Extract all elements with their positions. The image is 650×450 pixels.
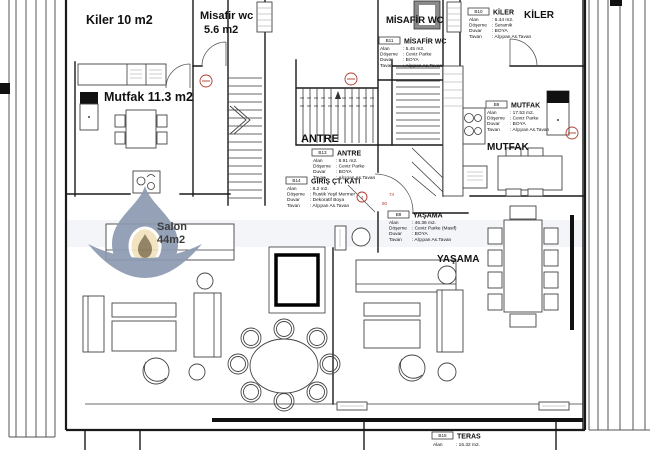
svg-text:: 17.53 m2.: : 17.53 m2. bbox=[510, 110, 534, 116]
info-box-misafir-wc: B11 MİSAFİR WC Alan: 5.45 m2. Döşeme: Ce… bbox=[379, 37, 446, 69]
svg-text:TERAS: TERAS bbox=[457, 434, 481, 441]
door-misafir-wc-left bbox=[202, 42, 226, 66]
section-lines-left bbox=[0, 0, 55, 437]
svg-text:MİSAFİR WC: MİSAFİR WC bbox=[404, 38, 446, 46]
kitchen-table-left bbox=[115, 110, 167, 148]
svg-text:: Ceviz Parke: : Ceviz Parke bbox=[510, 116, 539, 122]
info-box-antre: B13 ANTRE Alan: 8.91 m2. Döşeme: Ceviz P… bbox=[312, 149, 376, 181]
door-kiler-right bbox=[510, 39, 537, 66]
kiler-counter bbox=[78, 64, 166, 85]
dining-table-round bbox=[228, 319, 340, 411]
svg-text:B11: B11 bbox=[386, 38, 394, 43]
svg-text:: Ceviz Parke (Masif): : Ceviz Parke (Masif) bbox=[412, 226, 457, 232]
label-mutfak-right: MUTFAK bbox=[487, 142, 529, 153]
svg-text:Duvar: Duvar bbox=[389, 231, 402, 237]
svg-text:B9: B9 bbox=[494, 102, 500, 107]
kitchen-counter-right bbox=[443, 66, 487, 196]
svg-text:: Seramik: : Seramik bbox=[492, 23, 513, 29]
label-salon: Salon bbox=[157, 221, 187, 233]
yasama-armchair bbox=[399, 355, 425, 381]
svg-text:: Alçıpan As.Tavan: : Alçıpan As.Tavan bbox=[492, 34, 532, 40]
section-lines-right bbox=[589, 0, 650, 430]
floor-plan-canvas: 4 74 90 Kiler 10 m2 Misafir wc 5.6 m2 Mu… bbox=[0, 0, 650, 450]
floor-plan-drawing: 4 74 90 Kiler 10 m2 Misafir wc 5.6 m2 Mu… bbox=[0, 0, 650, 450]
svg-text:Duvar: Duvar bbox=[469, 28, 482, 34]
svg-text:Döşeme: Döşeme bbox=[469, 23, 487, 29]
svg-text:Tavan: Tavan bbox=[487, 127, 500, 133]
door-angle: 90 bbox=[382, 201, 388, 206]
label-misafir-wc-right: MİSAFİR WC bbox=[386, 15, 444, 26]
terrace-glazing bbox=[212, 402, 583, 422]
svg-text:: BOYA: : BOYA bbox=[492, 28, 508, 34]
svg-text:: BOYA: : BOYA bbox=[412, 231, 428, 237]
staircase-right bbox=[396, 68, 443, 196]
svg-text:Tavan: Tavan bbox=[469, 34, 482, 40]
svg-text:: Ceviz Parke: : Ceviz Parke bbox=[336, 164, 365, 170]
yasama-sofa-set bbox=[356, 260, 463, 381]
svg-text:: 46.36 m2.: : 46.36 m2. bbox=[412, 220, 436, 226]
svg-text:ANTRE: ANTRE bbox=[337, 151, 361, 158]
fridge-right bbox=[547, 91, 569, 135]
svg-text:Döşeme: Döşeme bbox=[487, 116, 505, 122]
svg-text:: Alçıpan As.Tavan: : Alçıpan As.Tavan bbox=[412, 237, 452, 243]
label-misafir-wc-left-area: 5.6 m2 bbox=[204, 24, 238, 36]
svg-text:: Rustik Yeşil Mermer: : Rustik Yeşil Mermer bbox=[310, 192, 355, 198]
svg-text:KİLER: KİLER bbox=[493, 9, 514, 17]
info-box-giris-kati: B14 GİRİŞ ÇT. KATI Alan: 8.2 m2. Döşeme:… bbox=[286, 177, 360, 209]
label-yasama: YAŞAMA bbox=[437, 254, 479, 265]
svg-text:Alan: Alan bbox=[433, 442, 443, 448]
svg-text:Duvar: Duvar bbox=[487, 121, 500, 127]
door-kiler-left bbox=[166, 64, 190, 88]
elevator bbox=[269, 247, 325, 313]
info-box-mutfak-right: B9 MUTFAK Alan: 17.53 m2. Döşeme: Ceviz … bbox=[486, 101, 550, 133]
svg-text:: 8.91 m2.: : 8.91 m2. bbox=[336, 158, 357, 164]
info-box-yasama: B8 YAŞAMA Alan: 46.36 m2. Döşeme: Ceviz … bbox=[388, 211, 457, 243]
radiator-left bbox=[257, 2, 272, 32]
svg-text:B15: B15 bbox=[438, 433, 447, 438]
radiator-right bbox=[447, 2, 461, 32]
svg-text:Alan: Alan bbox=[389, 220, 399, 226]
svg-text:B14: B14 bbox=[292, 178, 301, 183]
svg-text:Tavan: Tavan bbox=[287, 203, 300, 209]
svg-text:: BOYA: : BOYA bbox=[403, 57, 419, 63]
label-salon-area: 44m2 bbox=[157, 234, 185, 246]
svg-text:: Alçıpan As.Tavan: : Alçıpan As.Tavan bbox=[510, 127, 550, 133]
svg-text:Alan: Alan bbox=[487, 110, 497, 116]
svg-text:: 8.2 m2.: : 8.2 m2. bbox=[310, 186, 329, 192]
svg-text:: BOYA: : BOYA bbox=[510, 121, 526, 127]
svg-text:Alan: Alan bbox=[380, 46, 390, 52]
svg-text:B13: B13 bbox=[318, 150, 327, 155]
svg-text:Döşeme: Döşeme bbox=[287, 192, 305, 198]
svg-text:: Alçıpan As.Tavan: : Alçıpan As.Tavan bbox=[403, 63, 443, 69]
svg-text:: Dekoratif Boya: : Dekoratif Boya bbox=[310, 197, 344, 203]
stair-direction-arrow bbox=[335, 91, 341, 99]
svg-text:Alan: Alan bbox=[287, 186, 297, 192]
staircase-left bbox=[228, 78, 262, 198]
kitchen-table-right bbox=[498, 148, 562, 196]
svg-text:MUTFAK: MUTFAK bbox=[511, 103, 540, 110]
svg-text:: Ceviz Parke: : Ceviz Parke bbox=[403, 52, 432, 58]
svg-text:GİRİŞ ÇT. KATI: GİRİŞ ÇT. KATI bbox=[311, 178, 360, 186]
svg-text:B8: B8 bbox=[396, 212, 402, 217]
svg-text:Döşeme: Döşeme bbox=[313, 164, 331, 170]
label-antre: ANTRE bbox=[301, 133, 339, 145]
svg-text:YAŞAMA: YAŞAMA bbox=[413, 213, 443, 220]
door-width: 74 bbox=[389, 192, 395, 197]
info-box-kiler-right: B10 KİLER Alan: 6.44 m2. Döşeme: Seramik… bbox=[468, 8, 532, 40]
svg-text:: BOYA: : BOYA bbox=[336, 169, 352, 175]
label-mutfak-left: Mutfak 11.3 m2 bbox=[104, 90, 193, 104]
svg-text:Döşeme: Döşeme bbox=[380, 52, 398, 58]
svg-text:Tavan: Tavan bbox=[380, 63, 393, 69]
svg-text:: Alçıpan As.Tavan: : Alçıpan As.Tavan bbox=[310, 203, 350, 209]
door-number: 4 bbox=[361, 195, 364, 200]
svg-text:: 5.45 m2.: : 5.45 m2. bbox=[403, 46, 424, 52]
label-misafir-wc-left: Misafir wc bbox=[200, 10, 253, 22]
svg-text:Alan: Alan bbox=[313, 158, 323, 164]
salon-armchair bbox=[143, 358, 169, 384]
svg-text:Duvar: Duvar bbox=[313, 169, 326, 175]
sink-left bbox=[133, 171, 160, 193]
info-box-teras: B15 TERAS Alan: 15.32 m2. bbox=[432, 432, 481, 448]
svg-text:Duvar: Duvar bbox=[380, 57, 393, 63]
label-kiler-right: KİLER bbox=[524, 8, 555, 21]
svg-text:: 15.32 m2.: : 15.32 m2. bbox=[456, 442, 480, 448]
oven-column-left bbox=[80, 92, 98, 130]
svg-text:Alan: Alan bbox=[469, 17, 479, 23]
svg-text:Döşeme: Döşeme bbox=[389, 226, 407, 232]
svg-text:Duvar: Duvar bbox=[287, 197, 300, 203]
svg-text:Tavan: Tavan bbox=[389, 237, 402, 243]
svg-text:: 6.44 m2.: : 6.44 m2. bbox=[492, 17, 513, 23]
svg-text:B10: B10 bbox=[474, 9, 483, 14]
label-kiler-left: Kiler 10 m2 bbox=[86, 13, 153, 27]
